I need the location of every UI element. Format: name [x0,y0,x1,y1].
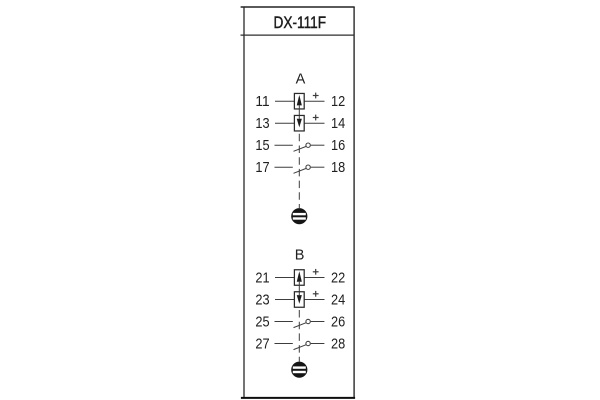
svg-text:B: B [295,248,305,264]
svg-text:24: 24 [331,292,345,308]
svg-text:A: A [296,72,306,88]
svg-text:18: 18 [331,160,345,176]
svg-text:23: 23 [255,292,269,308]
svg-text:11: 11 [255,94,269,110]
svg-text:25: 25 [255,314,269,330]
svg-text:28: 28 [331,336,345,352]
svg-text:14: 14 [331,116,345,132]
svg-text:DX-111F: DX-111F [274,13,327,32]
svg-text:17: 17 [255,160,269,176]
svg-text:22: 22 [331,270,345,286]
svg-text:13: 13 [255,116,269,132]
svg-text:16: 16 [331,138,345,154]
svg-text:12: 12 [331,94,345,110]
svg-text:27: 27 [255,336,269,352]
svg-text:21: 21 [255,270,269,286]
svg-text:15: 15 [255,138,269,154]
svg-text:26: 26 [331,314,345,330]
